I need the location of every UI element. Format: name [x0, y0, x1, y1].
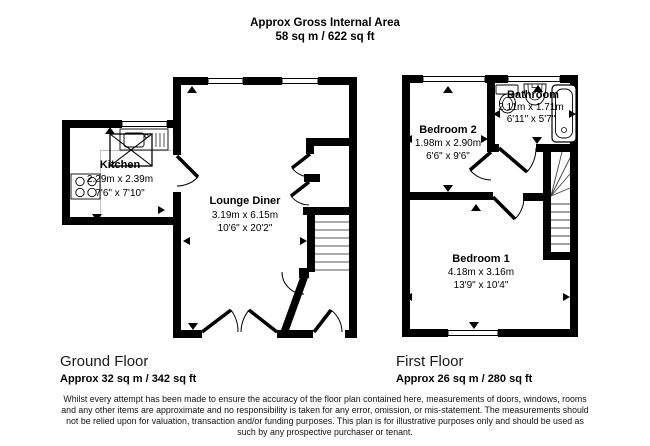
bathroom-dims-metric: 2.11m x 1.71m	[498, 102, 563, 113]
bedroom1-window	[448, 329, 498, 337]
lounge-name: Lounge Diner	[210, 195, 282, 207]
french-door-swing	[202, 310, 277, 332]
measure-arrow	[471, 204, 481, 211]
kitchen-label: Kitchen 2.29m x 2.39m 7'6" x 7'10"	[87, 159, 153, 199]
lounge-dims-imperial: 10'6" x 20'2"	[218, 223, 273, 234]
lounge-dims-metric: 3.19m x 6.15m	[212, 210, 278, 221]
bathroom-dims-imperial: 6'11" x 5'7"	[507, 114, 556, 125]
bedroom2-window	[423, 75, 485, 83]
ground-floor-walls	[62, 77, 357, 338]
first-floor-area: Approx 26 sq m / 280 sq ft	[396, 373, 532, 385]
measure-arrow	[188, 323, 198, 330]
first-floor-caption: First Floor Approx 26 sq m / 280 sq ft	[396, 353, 532, 385]
ground-floor-stairs	[315, 222, 349, 270]
cupboard-door-swing-2	[291, 182, 309, 205]
kitchen-window	[122, 120, 167, 128]
bedroom2-dims-metric: 1.98m x 2.90m	[415, 138, 481, 149]
bedroom2-name: Bedroom 2	[419, 124, 476, 136]
disclaimer-text: Whilst every attempt has been made to en…	[57, 394, 593, 438]
measure-arrow	[563, 293, 570, 301]
measure-arrow	[187, 86, 197, 93]
measure-arrow	[300, 237, 307, 245]
lounge-diner-label: Lounge Diner 3.19m x 6.15m 10'6" x 20'2"	[210, 195, 282, 234]
measure-arrow	[105, 127, 115, 134]
bedroom2-door-swing	[470, 152, 491, 180]
floorplan-page: Approx Gross Internal Area 58 sq m / 622…	[0, 0, 650, 446]
first-floor-plan: Bedroom 2 1.98m x 2.90m 6'6" x 9'6" Bath…	[402, 75, 578, 337]
measure-arrow	[443, 86, 453, 93]
bedroom2-label: Bedroom 2 1.98m x 2.90m 6'6" x 9'6"	[415, 124, 481, 162]
bedroom1-dims-metric: 4.18m x 3.16m	[448, 267, 514, 278]
understairs-diagonal-wall	[281, 272, 309, 333]
kitchen-dims-imperial: 7'6" x 7'10"	[95, 188, 145, 199]
bathroom-name: Bathroom	[507, 89, 559, 101]
bathroom-window	[508, 75, 560, 83]
kitchen-door-swing	[177, 156, 198, 186]
ground-floor-caption: Ground Floor Approx 32 sq m / 342 sq ft	[60, 353, 196, 385]
kitchen-dims-metric: 2.29m x 2.39m	[87, 174, 153, 185]
measure-arrow	[183, 237, 190, 245]
first-floor-stairs	[551, 152, 570, 244]
bedroom1-label: Bedroom 1 4.18m x 3.16m 13'9" x 10'4"	[448, 253, 514, 291]
bedroom1-name: Bedroom 1	[452, 253, 509, 265]
ground-floor-title: Ground Floor	[60, 353, 196, 370]
ground-floor-plan: Kitchen 2.29m x 2.39m 7'6" x 7'10" Loung…	[62, 77, 357, 338]
lounge-window-1	[208, 77, 243, 85]
measure-arrow	[469, 322, 479, 329]
bathroom-label: Bathroom 2.11m x 1.71m 6'11" x 5'7"	[498, 89, 563, 125]
measure-arrow	[158, 206, 165, 214]
measure-arrow	[443, 185, 453, 192]
first-floor-title: First Floor	[396, 353, 532, 370]
bathroom-door-swing	[499, 148, 536, 172]
measure-arrow	[481, 135, 488, 143]
ground-floor-area: Approx 32 sq m / 342 sq ft	[60, 373, 196, 385]
bedroom1-door-swing	[493, 197, 524, 219]
entrance-door-swing	[314, 310, 342, 332]
bedroom1-dims-imperial: 13'9" x 10'4"	[454, 280, 509, 291]
cupboard-door-swing-1	[292, 154, 310, 177]
kitchen-name: Kitchen	[100, 159, 141, 171]
measure-arrow	[532, 137, 542, 144]
lounge-window-2	[282, 77, 318, 85]
bedroom2-dims-imperial: 6'6" x 9'6"	[426, 151, 470, 162]
